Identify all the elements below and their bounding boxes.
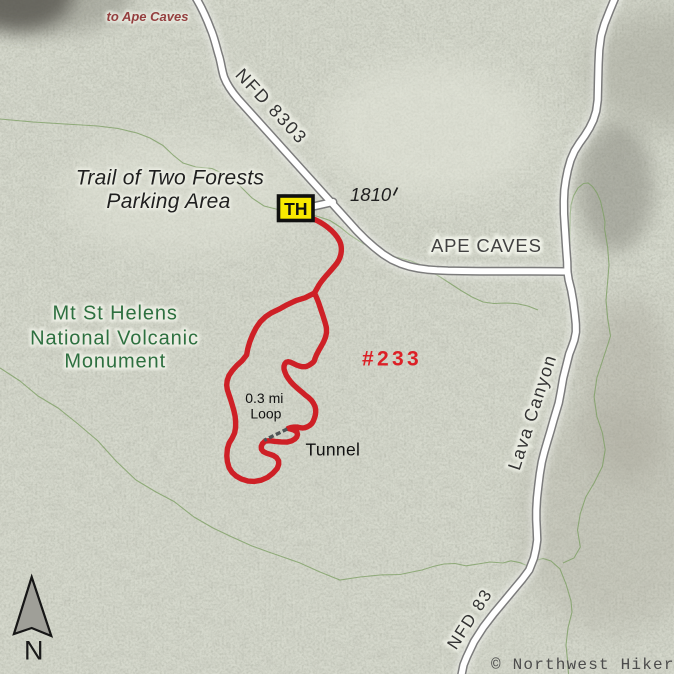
- svg-text:Monument: Monument: [64, 351, 166, 373]
- svg-text:TH: TH: [284, 199, 307, 219]
- svg-text:to Ape Caves: to Ape Caves: [107, 9, 189, 24]
- svg-text:APE CAVES: APE CAVES: [431, 235, 542, 256]
- svg-text:Parking Area: Parking Area: [106, 190, 230, 213]
- svg-text:Loop: Loop: [250, 406, 281, 422]
- svg-text:N: N: [24, 636, 44, 666]
- svg-text:Mt St Helens: Mt St Helens: [53, 303, 178, 325]
- svg-text:Tunnel: Tunnel: [306, 440, 361, 460]
- svg-text:0.3 mi: 0.3 mi: [245, 390, 283, 406]
- svg-text:National Volcanic: National Volcanic: [30, 327, 199, 349]
- svg-text:© Northwest Hiker: © Northwest Hiker: [491, 656, 674, 674]
- svg-text:#233: #233: [362, 348, 422, 371]
- svg-text:Trail of Two Forests: Trail of Two Forests: [76, 166, 265, 189]
- svg-text:1810: 1810: [350, 184, 392, 205]
